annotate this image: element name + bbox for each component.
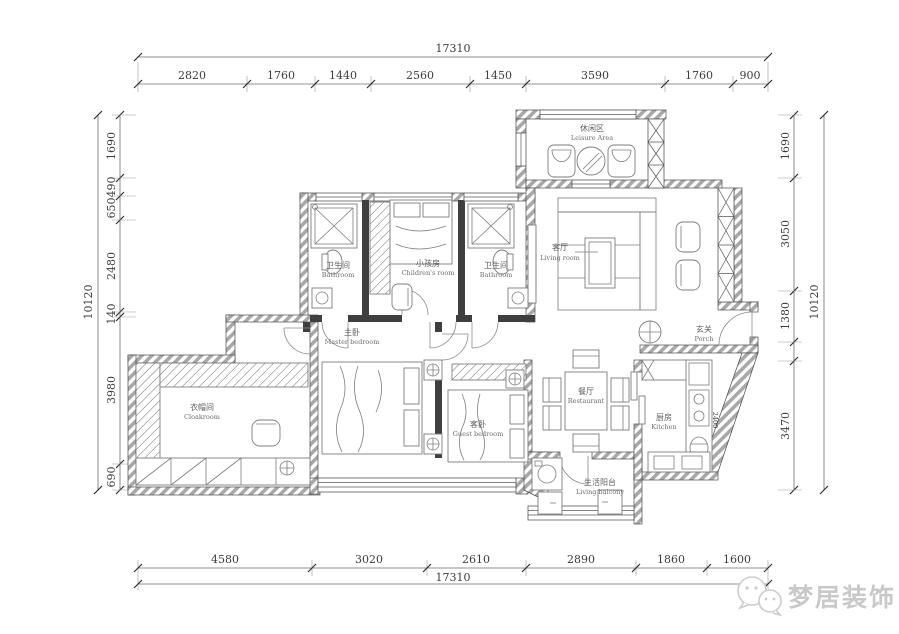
room-living-zh: 客厅 <box>552 242 568 252</box>
floor-plan-drawing: 17310 2820 1760 1440 2560 1450 3590 1760… <box>0 0 899 634</box>
dim-left-segment-4: 140 <box>105 304 118 325</box>
window-bedroom-top-3 <box>464 193 518 201</box>
dim-left-segment-5: 3980 <box>105 376 118 404</box>
dim-bottom-total: 17310 <box>436 571 471 584</box>
dim-top-segment-1: 1760 <box>267 69 295 82</box>
guest-door <box>442 334 468 360</box>
brand-logo: 梦居装饰 <box>738 577 896 615</box>
master-door <box>430 322 456 348</box>
wechat-icon <box>738 577 781 615</box>
living-room-furniture <box>528 198 700 343</box>
dim-top-segment-7: 900 <box>740 69 761 82</box>
dim-bottom-segment-1: 3020 <box>355 553 383 566</box>
dim-right-total: 10120 <box>808 285 821 320</box>
room-guest-zh: 客卧 <box>470 419 486 429</box>
dim-right-segment-3: 3470 <box>779 412 792 440</box>
window-leisure-top <box>540 110 636 119</box>
dim-right-segment-0: 1690 <box>779 132 792 160</box>
room-children-en: Children's room <box>402 269 455 277</box>
bath-right-door <box>472 322 498 348</box>
dim-top-segment-3: 2560 <box>406 69 434 82</box>
room-leisure-en: Leisure Area <box>571 134 613 142</box>
room-master-en: Master bedroom <box>325 338 380 346</box>
room-guest-en: Guest bedroom <box>453 430 504 438</box>
room-cloakroom-zh: 衣帽间 <box>190 402 214 412</box>
dim-bottom-segment-4: 1860 <box>657 553 685 566</box>
room-bath-left-zh: 卫生间 <box>326 260 350 270</box>
room-dining-en: Restaurant <box>568 397 605 405</box>
window-living-top <box>572 180 610 188</box>
brand-logo-text: 梦居装饰 <box>788 584 896 612</box>
room-living-en: Living room <box>540 254 580 262</box>
entry-door <box>719 312 752 345</box>
dimension-right: 1690 3050 1380 3470 10120 <box>778 111 828 494</box>
room-kitchen-zh: 厨房 <box>656 412 672 422</box>
room-balcony-zh: 生活阳台 <box>584 477 616 487</box>
kitchen-fixtures <box>642 360 712 472</box>
dim-bottom-segment-2: 2610 <box>462 553 490 566</box>
dim-top-segment-2: 1440 <box>329 69 357 82</box>
room-bath-right-zh: 卫生间 <box>484 260 508 270</box>
room-balcony-en: Living balcony <box>576 488 624 496</box>
room-kitchen-en: Kitchen <box>651 423 676 431</box>
dim-top-total: 17310 <box>436 42 471 55</box>
dim-bottom-segment-5: 1600 <box>723 553 751 566</box>
dim-top-segment-6: 1760 <box>685 69 713 82</box>
room-dining-zh: 餐厅 <box>578 387 594 396</box>
bathroom-right-fixtures <box>468 204 528 308</box>
window-bedroom-top-1 <box>316 193 362 201</box>
dim-top-segment-5: 3590 <box>581 69 609 82</box>
window-column-living-right <box>718 188 734 302</box>
children-furniture <box>370 200 452 310</box>
dim-right-segment-2: 1380 <box>779 302 792 330</box>
leisure-chairs-and-table <box>548 145 635 177</box>
dimension-bottom: 4580 3020 2610 2890 1860 1600 17310 <box>134 553 772 590</box>
bathroom-left-fixtures <box>311 204 357 308</box>
dim-top-segment-4: 1450 <box>484 69 512 82</box>
dimension-top: 17310 2820 1760 1440 2560 1450 3590 1760… <box>134 42 772 92</box>
dim-left-segment-0: 1690 <box>105 132 118 160</box>
room-porch-en: Porch <box>695 335 714 343</box>
window-leisure-left <box>516 133 526 166</box>
dim-bottom-segment-0: 4580 <box>211 553 239 566</box>
dim-left-segment-6: 690 <box>105 467 118 488</box>
master-bed <box>322 360 442 454</box>
dim-left-segment-1: 490 <box>105 177 118 198</box>
dim-kitchen-counter: 2400 <box>711 412 719 429</box>
window-column-leisure-right <box>648 119 664 188</box>
window-band-bedroom-bottom <box>318 478 516 492</box>
dim-left-segment-2: 650 <box>105 198 118 219</box>
dim-left-total: 10120 <box>82 285 95 320</box>
guest-bed <box>448 364 528 462</box>
room-master-zh: 主卧 <box>344 327 360 337</box>
cloakroom-fittings <box>136 363 310 485</box>
dim-left-segment-3: 2480 <box>105 252 118 280</box>
room-leisure-zh: 休闲区 <box>580 123 604 133</box>
room-cloakroom-en: Cloakroom <box>184 413 220 421</box>
dim-bottom-segment-3: 2890 <box>567 553 595 566</box>
dim-right-segment-1: 3050 <box>779 220 792 248</box>
room-porch-zh: 玄关 <box>696 324 712 334</box>
dim-top-segment-0: 2820 <box>178 69 206 82</box>
room-children-zh: 小孩房 <box>416 258 440 268</box>
room-bath-right-en: Bathroom <box>480 271 513 279</box>
floor-plan-sheet: 17310 2820 1760 1440 2560 1450 3590 1760… <box>0 0 899 634</box>
room-bath-left-en: Bathroom <box>322 271 355 279</box>
